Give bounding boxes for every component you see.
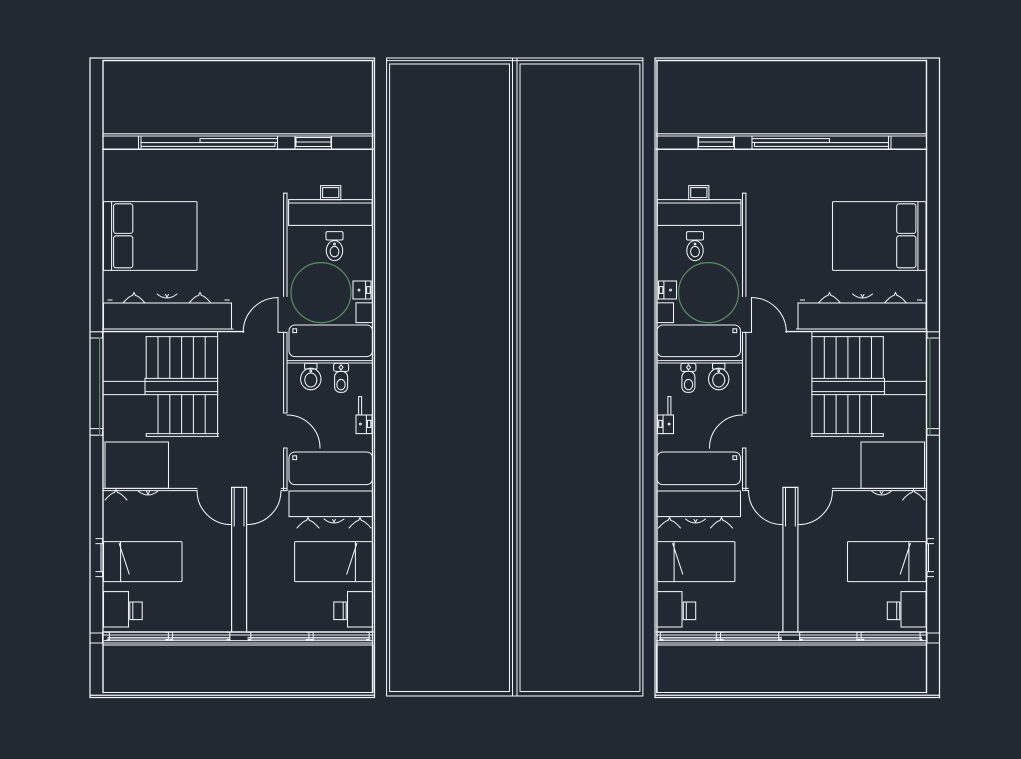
cad-canvas[interactable] (0, 0, 1021, 759)
floor-plan-drawing[interactable] (0, 0, 1021, 759)
